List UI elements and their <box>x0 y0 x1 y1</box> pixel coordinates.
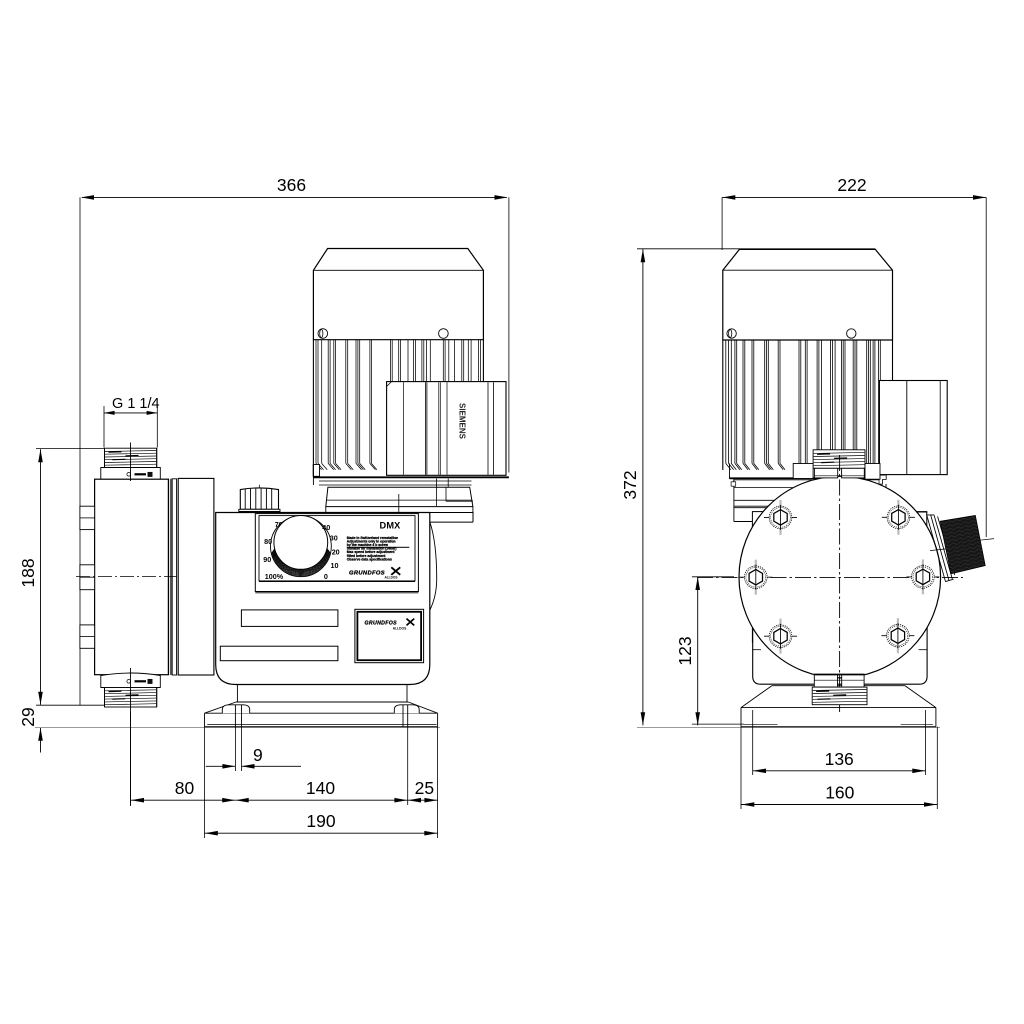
svg-text:222: 222 <box>837 175 866 195</box>
svg-text:G 1 1/4: G 1 1/4 <box>112 396 160 412</box>
svg-text:80: 80 <box>175 778 195 798</box>
svg-text:160: 160 <box>825 783 854 803</box>
svg-text:80: 80 <box>264 537 272 546</box>
svg-text:ALLDOS: ALLDOS <box>393 627 407 631</box>
svg-text:190: 190 <box>306 811 335 831</box>
svg-text:366: 366 <box>277 175 306 195</box>
svg-text:140: 140 <box>306 778 335 798</box>
svg-text:9: 9 <box>253 745 263 765</box>
svg-text:GRUNDFOS: GRUNDFOS <box>349 571 385 577</box>
svg-text:0: 0 <box>324 572 328 581</box>
svg-text:188: 188 <box>18 558 38 587</box>
svg-text:SIEMENS: SIEMENS <box>458 403 467 440</box>
svg-text:Observe data specifications: Observe data specifications <box>347 557 392 561</box>
svg-text:DMX: DMX <box>379 521 401 531</box>
svg-text:372: 372 <box>620 470 640 499</box>
svg-text:40: 40 <box>322 523 330 532</box>
svg-text:10: 10 <box>331 561 339 570</box>
svg-text:30: 30 <box>330 534 338 543</box>
svg-text:123: 123 <box>675 636 695 665</box>
svg-text:100%: 100% <box>265 572 284 581</box>
svg-text:90: 90 <box>263 555 271 564</box>
svg-text:ALLDOS: ALLDOS <box>384 575 397 579</box>
svg-text:136: 136 <box>825 749 854 769</box>
svg-text:29: 29 <box>18 707 38 726</box>
svg-text:20: 20 <box>332 547 340 556</box>
svg-text:25: 25 <box>415 778 434 798</box>
